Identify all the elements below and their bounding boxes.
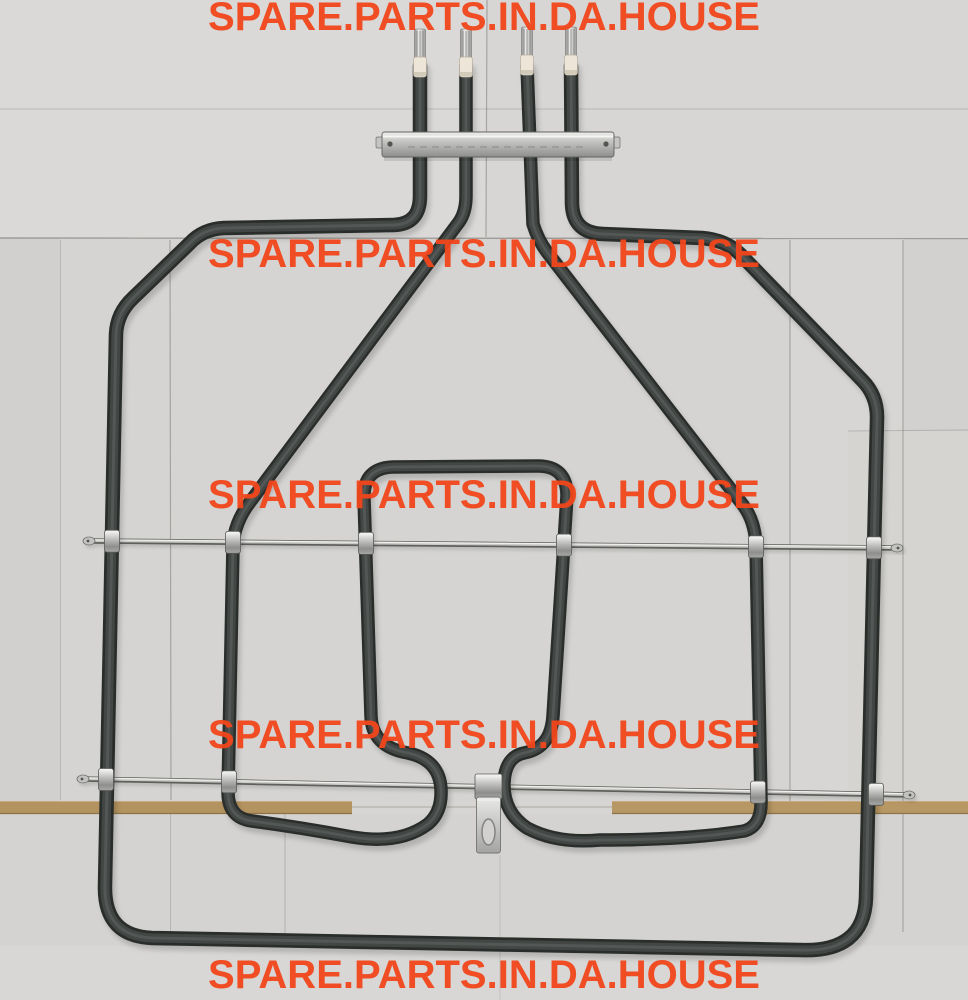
terminal-pin (460, 29, 473, 77)
product-photo: SPARE.PARTS.IN.DA.HOUSE SPARE.PARTS.IN.D… (0, 0, 968, 1000)
terminal-pin (565, 27, 578, 75)
heating-element-photo (0, 0, 968, 1000)
terminal-pin (521, 27, 534, 75)
terminal-pin (414, 29, 427, 77)
center-mounting-tab (475, 774, 502, 853)
mounting-bracket (376, 132, 620, 161)
